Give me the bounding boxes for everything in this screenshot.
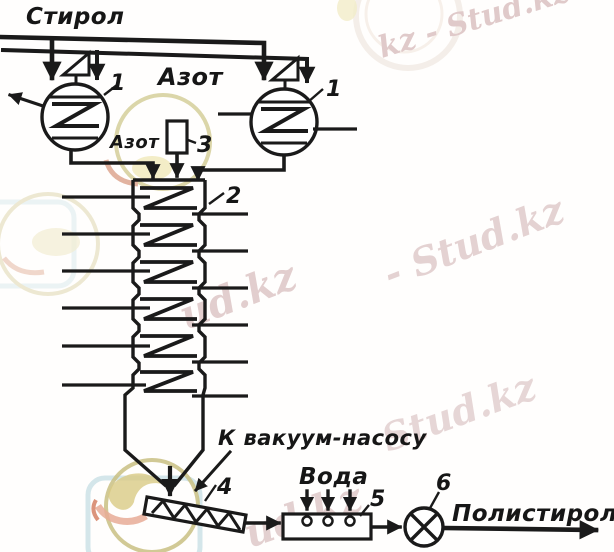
conveyor-number: 4 [216, 475, 232, 500]
water-label: Вода [299, 464, 368, 490]
polystyrene-label: Полистирол [452, 501, 614, 527]
washer-box [283, 514, 371, 539]
process-flow-diagram: kz - Stud.kz - Stud.kz ud.kz Stud.kz ud.… [0, 0, 614, 552]
nitrogen-box [167, 121, 187, 153]
nitrogen-box-number: 3 [197, 133, 212, 158]
watermark-text-top-right: kz - Stud.kz [374, 0, 574, 66]
nozzle-icon [303, 517, 312, 526]
grinder-number: 6 [436, 471, 451, 496]
polystyrene-product-arrow [445, 528, 596, 530]
reactor-right-number: 1 [326, 77, 341, 102]
watermark-text-mid-right: - Stud.kz [377, 186, 571, 296]
reactor-right [218, 58, 357, 155]
styrene-label: Стирол [26, 4, 124, 30]
nitrogen-main-label: Азот [156, 63, 225, 91]
right-reactor-outlet-pipe [198, 156, 284, 179]
nitrogen-feed-label: Азот [108, 132, 160, 153]
valve-icon [272, 58, 298, 80]
watermark-layer: kz - Stud.kz - Stud.kz ud.kz Stud.kz ud.… [0, 0, 574, 552]
labels-layer: Стирол Азот Азот К вакуум-насосу Вода По… [26, 4, 614, 527]
logo-watermark-left [0, 194, 98, 294]
column-number: 2 [226, 184, 241, 209]
diagram-canvas: kz - Stud.kz - Stud.kz ud.kz Stud.kz ud.… [0, 0, 614, 552]
valve-icon [63, 53, 89, 75]
left-reactor-vent-arrow [10, 95, 43, 106]
nitrogen-main-pipe [3, 50, 307, 81]
vacuum-label: К вакуум-насосу [218, 426, 427, 450]
washer-number: 5 [370, 487, 385, 512]
nozzle-icon [324, 517, 333, 526]
grinder [405, 508, 443, 546]
nozzle-icon [346, 517, 355, 526]
reactor-left-number: 1 [110, 71, 125, 96]
